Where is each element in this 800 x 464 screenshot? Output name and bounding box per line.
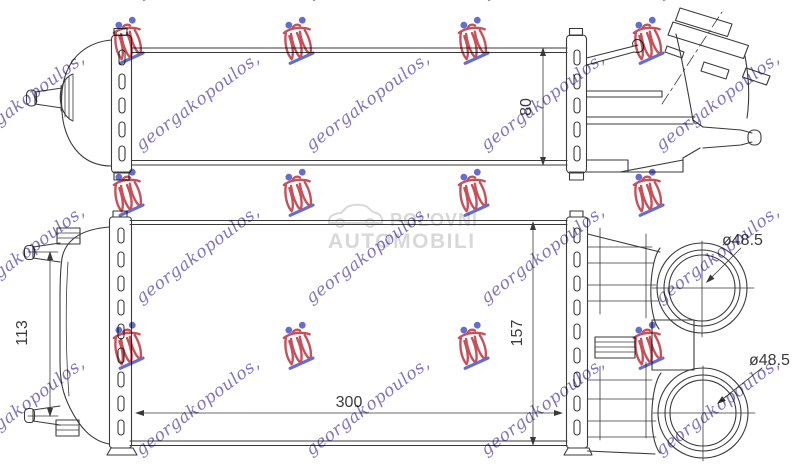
dimension-mount-pin-spacing: 113 — [14, 251, 58, 417]
top-view-drawing: 80 — [27, 8, 771, 180]
dimension-label-bottom-port-diameter: ø48.5 — [749, 352, 790, 369]
dimension-label-top-port-diameter: ø48.5 — [722, 232, 763, 249]
dimension-bottom-port-diameter: ø48.5 — [717, 352, 790, 404]
dimension-label-core-width: 300 — [336, 394, 363, 411]
drawing-canvas: 80 — [0, 0, 800, 464]
front-view-drawing: 113 157 300 ø48.5 — [14, 211, 790, 461]
dimension-core-width: 300 — [135, 394, 563, 416]
intercooler-technical-drawing: POLOVNI AUTOMOBILI — [0, 0, 800, 464]
dimension-depth: 80 — [518, 47, 546, 166]
dimension-label-depth: 80 — [518, 98, 535, 116]
dimension-label-core-height: 157 — [509, 320, 526, 347]
dimension-label-mount-pin-spacing: 113 — [14, 320, 31, 346]
dimension-core-height: 157 — [509, 221, 536, 446]
